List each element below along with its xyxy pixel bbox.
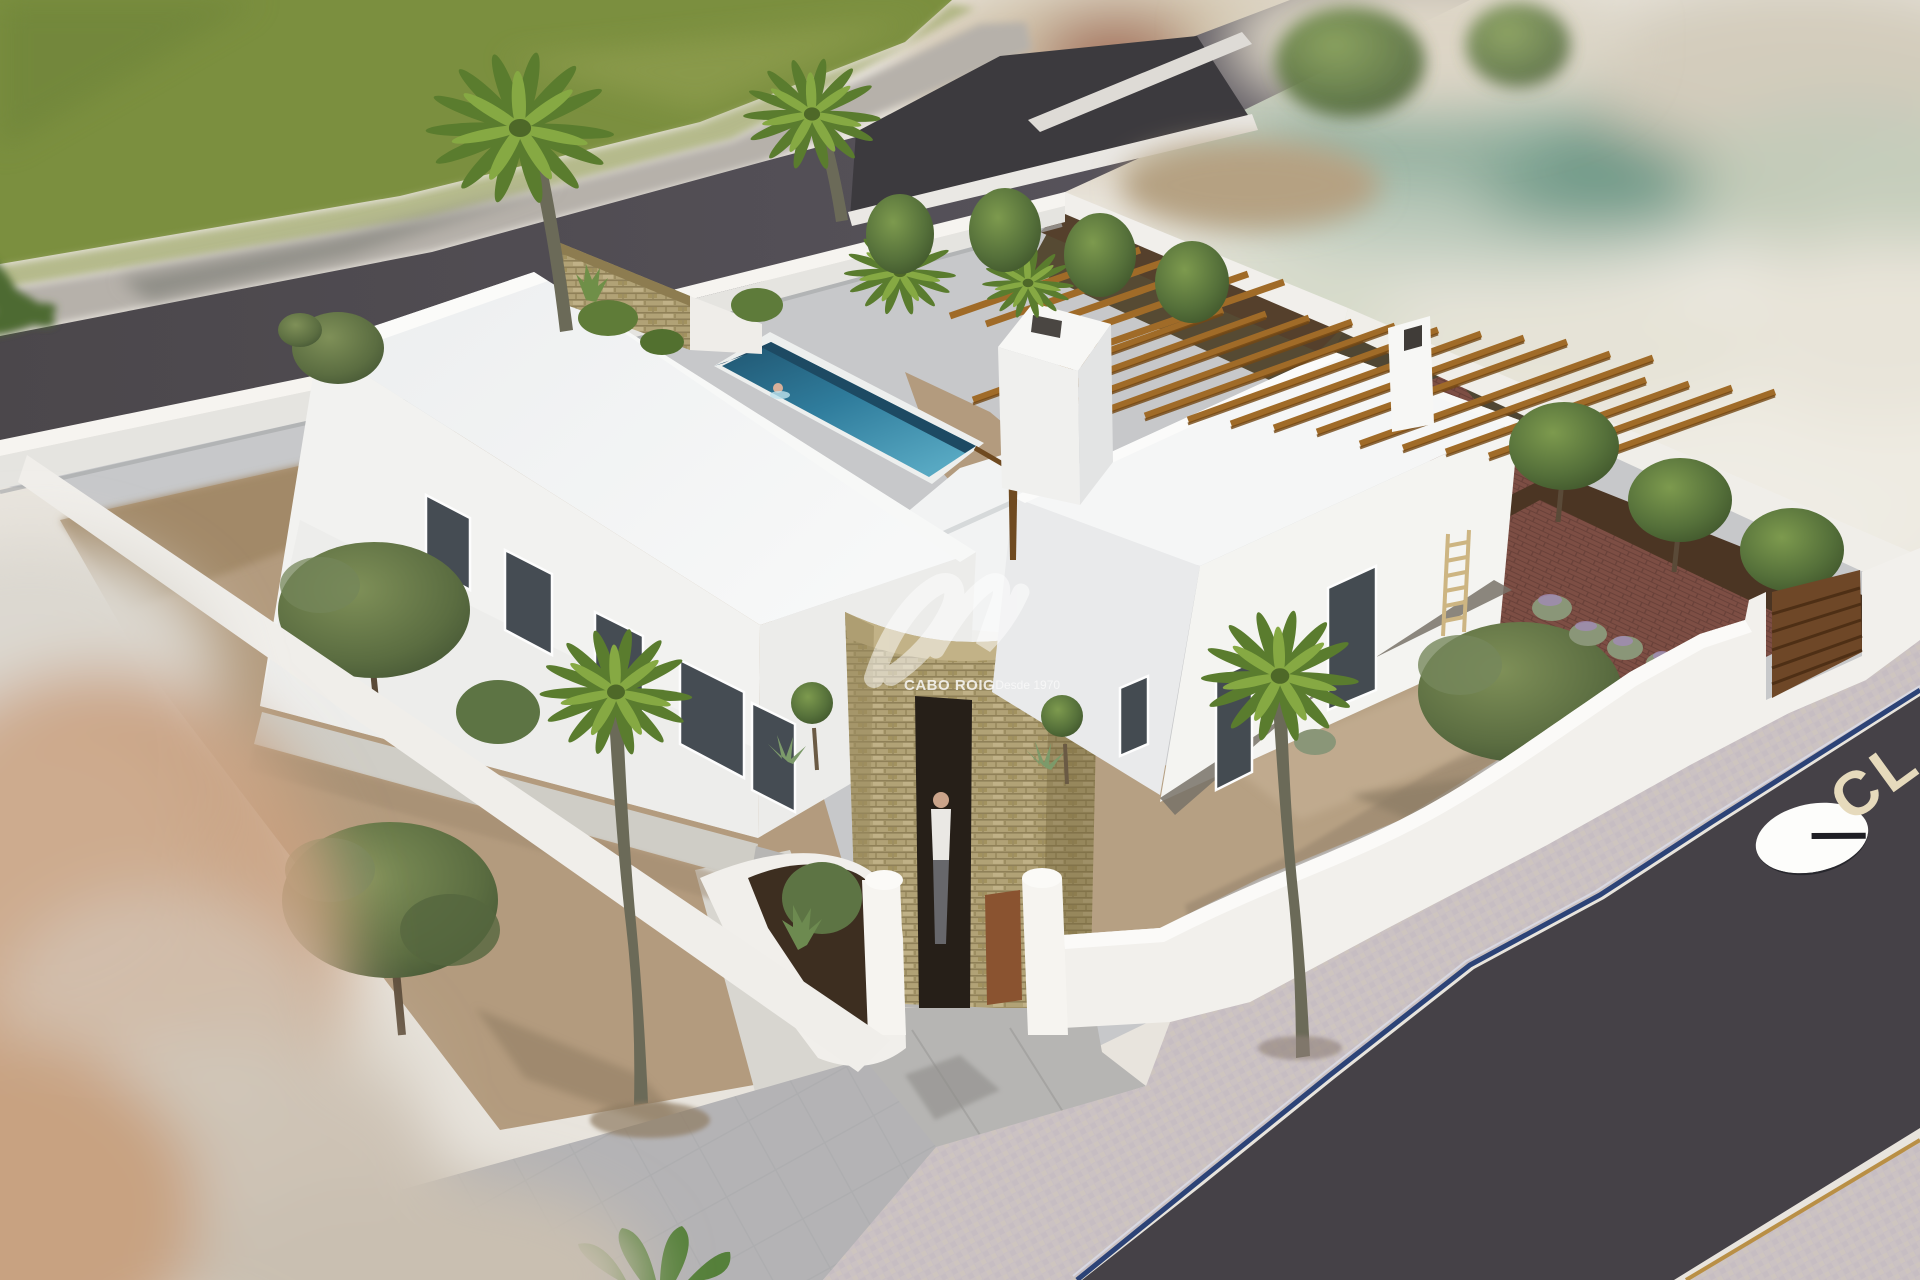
svg-text:- Desde 1970: - Desde 1970 <box>988 678 1060 692</box>
svg-text:CABO ROIG: CABO ROIG <box>904 677 995 694</box>
